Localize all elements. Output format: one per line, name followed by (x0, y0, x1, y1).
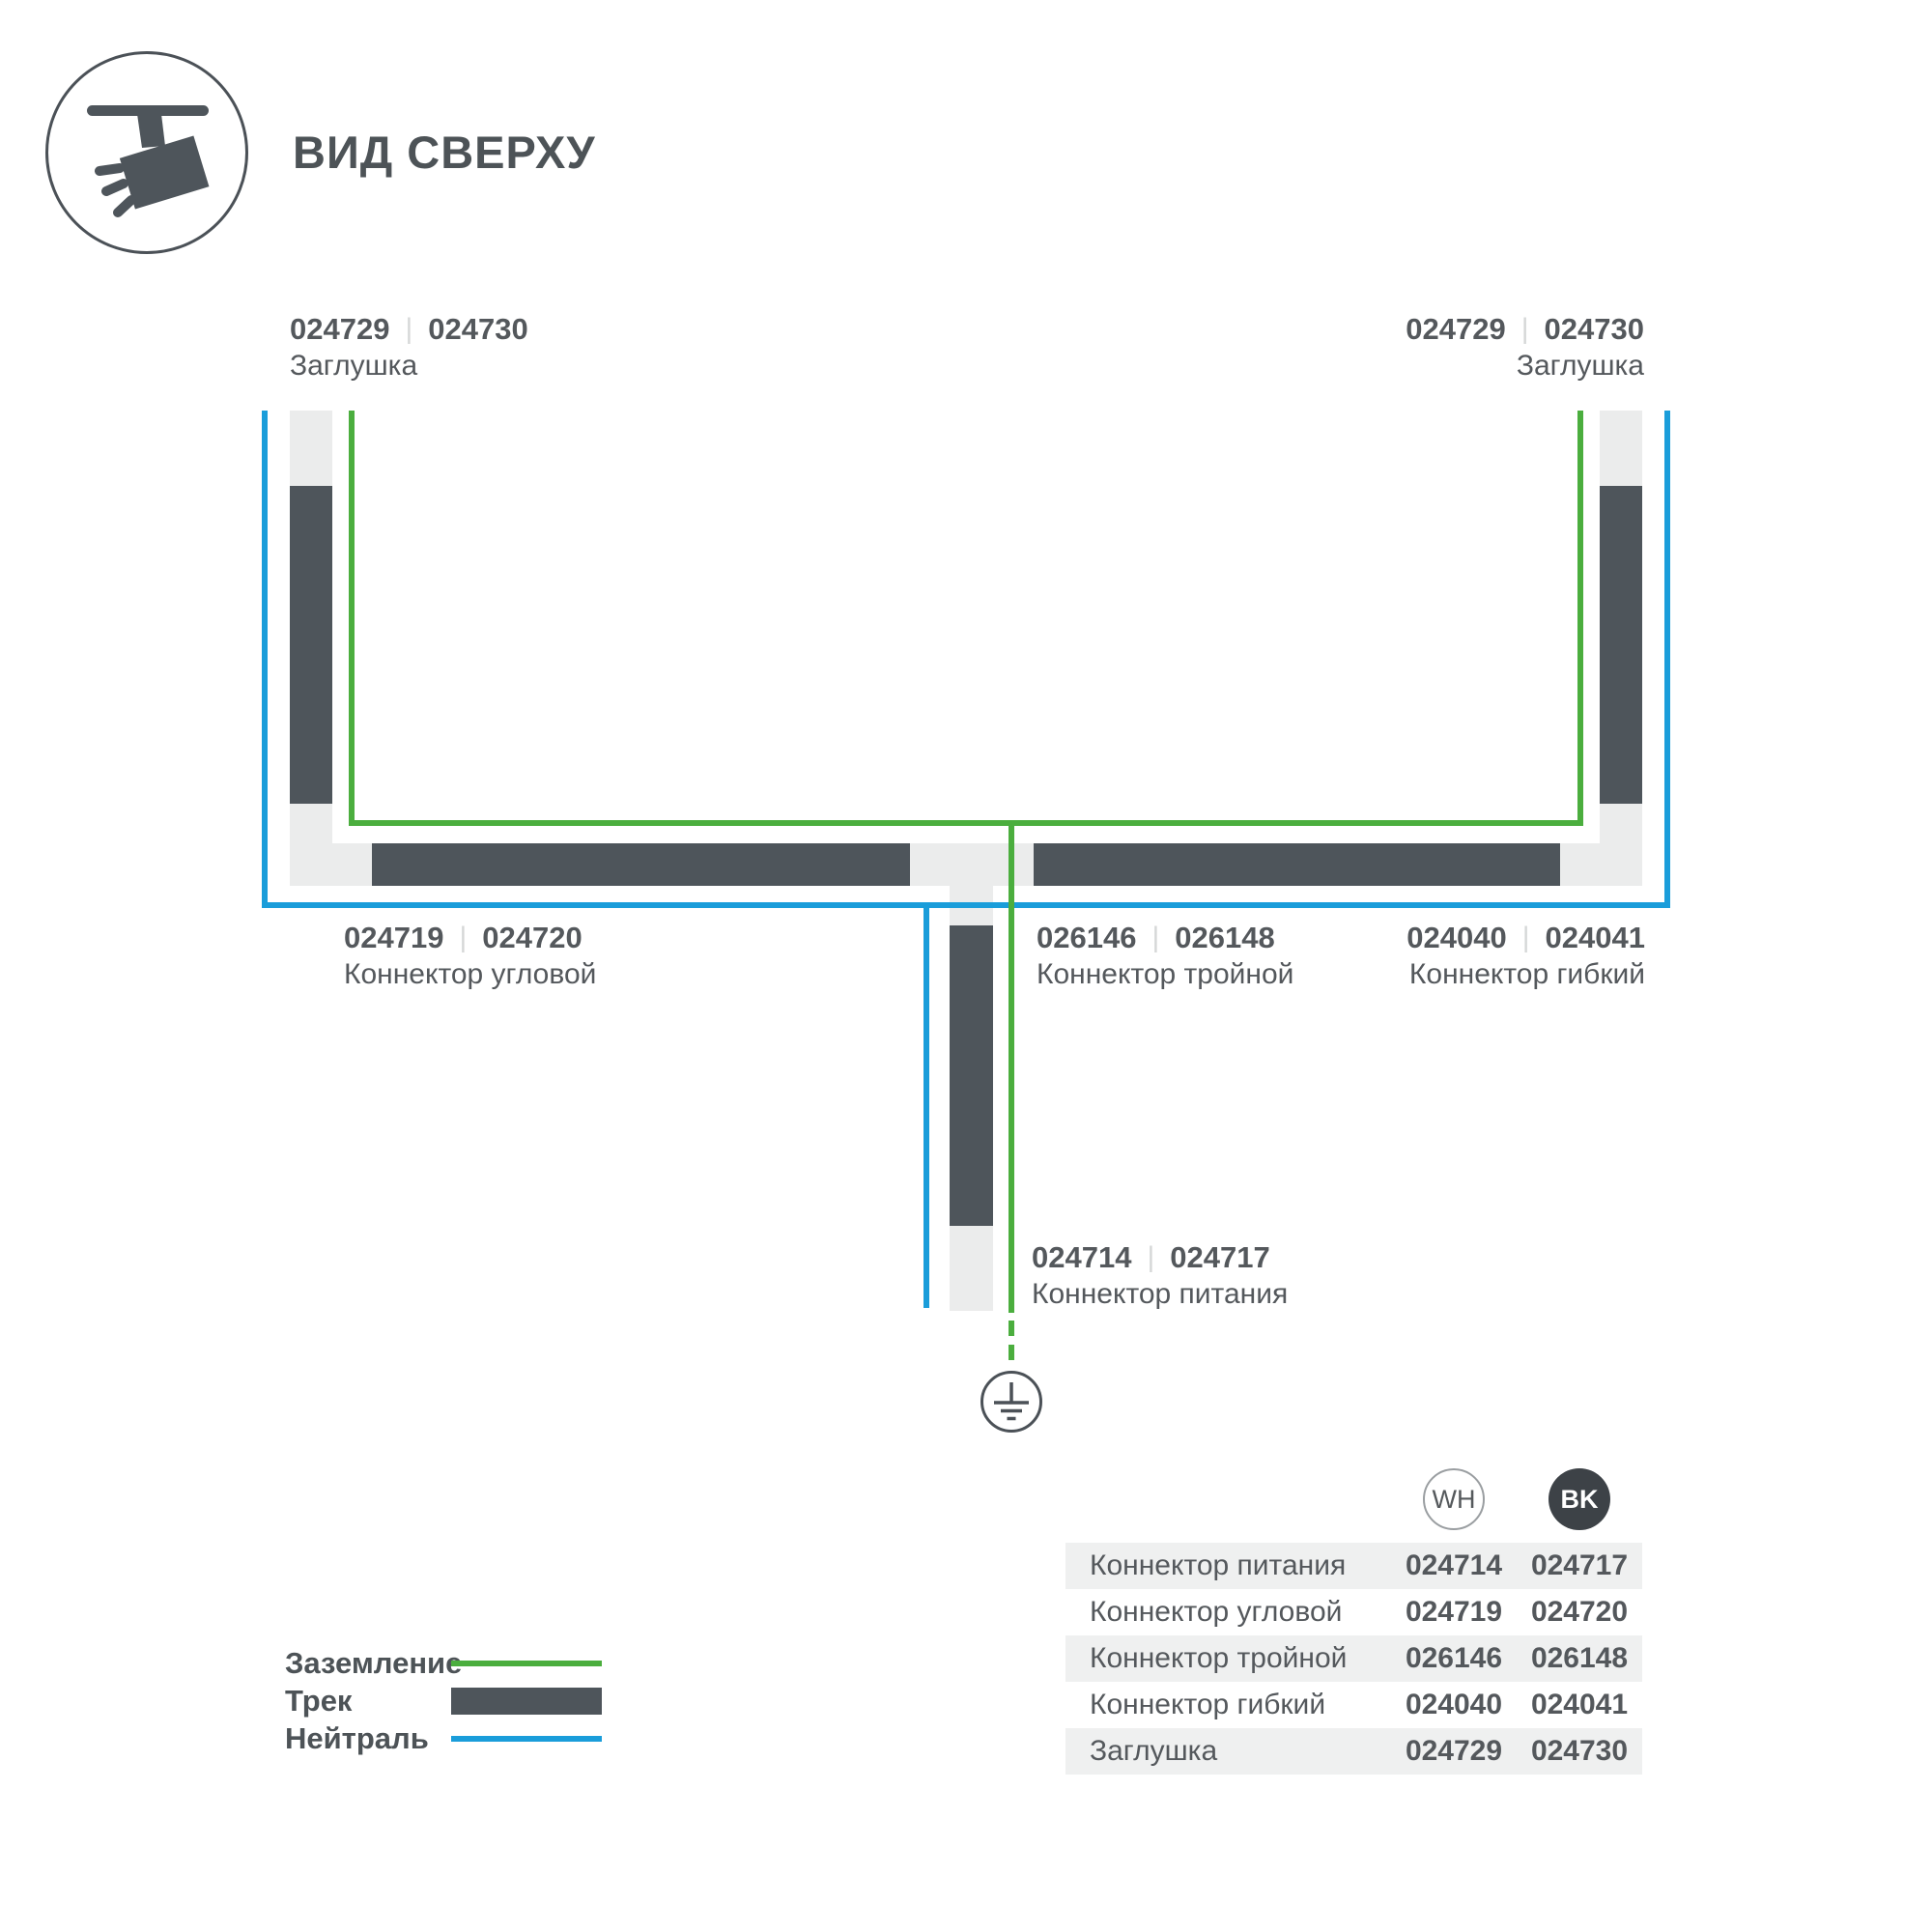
part-number-wh: 026146 (1037, 920, 1136, 956)
row-bk-article: 024717 (1517, 1549, 1642, 1582)
label-power-connector: 024714 | 024717 Коннектор питания (1032, 1239, 1288, 1313)
row-bk-article: 024041 (1517, 1689, 1642, 1721)
color-badge-white: WH (1423, 1468, 1485, 1530)
table-row: Заглушка 024729 024730 (1065, 1728, 1642, 1775)
neutral-wire-bottom (262, 902, 1670, 908)
table-row: Коннектор тройной 026146 026148 (1065, 1635, 1642, 1682)
part-number-bk: 024720 (482, 920, 582, 956)
color-badge-black: BK (1548, 1468, 1610, 1530)
table-body: Коннектор питания 024714 024717 Коннекто… (1065, 1543, 1642, 1775)
table-row: Коннектор угловой 024719 024720 (1065, 1589, 1642, 1635)
row-name: Коннектор гибкий (1065, 1689, 1391, 1721)
earth-ground-icon (980, 1371, 1042, 1433)
part-numbers: 024040 | 024041 (1406, 920, 1645, 956)
track-segment-top-left (372, 843, 910, 886)
legend-label: Заземление (285, 1646, 451, 1681)
track-segment-right (1600, 486, 1642, 804)
row-wh-article: 024040 (1391, 1689, 1517, 1721)
number-separator: | (405, 311, 412, 348)
legend-label: Нейтраль (285, 1721, 451, 1756)
label-corner-connector: 024719 | 024720 Коннектор угловой (344, 920, 596, 993)
part-number-bk: 024041 (1546, 920, 1645, 956)
ground-wire-drop (1009, 820, 1014, 1313)
part-number-wh: 024714 (1032, 1239, 1131, 1276)
ground-line-swatch (451, 1661, 602, 1666)
row-wh-article: 024719 (1391, 1596, 1517, 1629)
number-separator: | (1151, 920, 1159, 956)
legend-label: Трек (285, 1684, 451, 1719)
ground-wire-dash (1009, 1345, 1014, 1360)
label-cap-right: 024729 | 024730 Заглушка (1406, 311, 1644, 384)
page-title: ВИД СВЕРХУ (293, 126, 596, 179)
track-segment-left (290, 486, 332, 804)
legend-swatch-box (451, 1688, 602, 1715)
table-row: Коннектор питания 024714 024717 (1065, 1543, 1642, 1589)
neutral-wire-right (1664, 411, 1670, 908)
label-tee-connector: 026146 | 026148 Коннектор тройной (1037, 920, 1293, 993)
part-name: Заглушка (1406, 348, 1644, 384)
part-name: Коннектор гибкий (1406, 956, 1645, 993)
part-numbers: 024729 | 024730 (1406, 311, 1644, 348)
row-bk-article: 024730 (1517, 1735, 1642, 1768)
legend-swatch-box (451, 1661, 602, 1666)
row-name: Коннектор тройной (1065, 1642, 1391, 1675)
part-numbers: 024729 | 024730 (290, 311, 528, 348)
track-spotlight-icon (45, 51, 248, 254)
article-table: WH BK Коннектор питания 024714 024717 Ко… (1065, 1468, 1642, 1775)
neutral-line-swatch (451, 1736, 602, 1742)
row-wh-article: 026146 (1391, 1642, 1517, 1675)
row-wh-article: 024714 (1391, 1549, 1517, 1582)
label-flex-connector: 024040 | 024041 Коннектор гибкий (1406, 920, 1645, 993)
ground-wire-left (349, 411, 355, 826)
number-separator: | (1521, 311, 1529, 348)
part-number-wh: 024729 (1406, 311, 1505, 348)
neutral-wire-drop (923, 902, 929, 1308)
ground-wire-bottom (349, 820, 1583, 826)
part-name: Коннектор питания (1032, 1276, 1288, 1313)
track-segment-top-right (1034, 843, 1560, 886)
part-number-bk: 024730 (1545, 311, 1644, 348)
part-name: Заглушка (290, 348, 528, 384)
row-bk-article: 024720 (1517, 1596, 1642, 1629)
legend-item-neutral: Нейтраль (285, 1719, 602, 1757)
part-number-bk: 026148 (1175, 920, 1274, 956)
ground-wire-dash (1009, 1321, 1014, 1336)
row-wh-article: 024729 (1391, 1735, 1517, 1768)
part-numbers: 026146 | 026148 (1037, 920, 1293, 956)
earth-glyph (983, 1374, 1039, 1430)
part-number-wh: 024729 (290, 311, 389, 348)
part-number-wh: 024040 (1406, 920, 1506, 956)
legend-swatch-box (451, 1736, 602, 1742)
part-number-bk: 024717 (1170, 1239, 1269, 1276)
row-name: Коннектор угловой (1065, 1596, 1391, 1629)
legend-item-track: Трек (285, 1682, 602, 1719)
neutral-wire-left (262, 411, 268, 908)
part-numbers: 024714 | 024717 (1032, 1239, 1288, 1276)
legend-item-ground: Заземление (285, 1644, 602, 1682)
track-segment-feed (950, 925, 993, 1226)
part-name: Коннектор угловой (344, 956, 596, 993)
number-separator: | (459, 920, 467, 956)
ground-wire-right (1577, 411, 1583, 826)
table-header: WH BK (1065, 1468, 1642, 1543)
part-name: Коннектор тройной (1037, 956, 1293, 993)
row-name: Заглушка (1065, 1735, 1391, 1768)
page: ВИД СВЕРХУ 024729 | 024730 (0, 0, 1932, 1932)
track-bar-swatch (451, 1688, 602, 1715)
part-numbers: 024719 | 024720 (344, 920, 596, 956)
row-name: Коннектор питания (1065, 1549, 1391, 1582)
part-number-wh: 024719 (344, 920, 443, 956)
number-separator: | (1147, 1239, 1154, 1276)
label-cap-left: 024729 | 024730 Заглушка (290, 311, 528, 384)
spotlight-glyph (48, 54, 245, 251)
legend: Заземление Трек Нейтраль (285, 1644, 602, 1757)
part-number-bk: 024730 (428, 311, 527, 348)
row-bk-article: 026148 (1517, 1642, 1642, 1675)
table-row: Коннектор гибкий 024040 024041 (1065, 1682, 1642, 1728)
number-separator: | (1522, 920, 1530, 956)
